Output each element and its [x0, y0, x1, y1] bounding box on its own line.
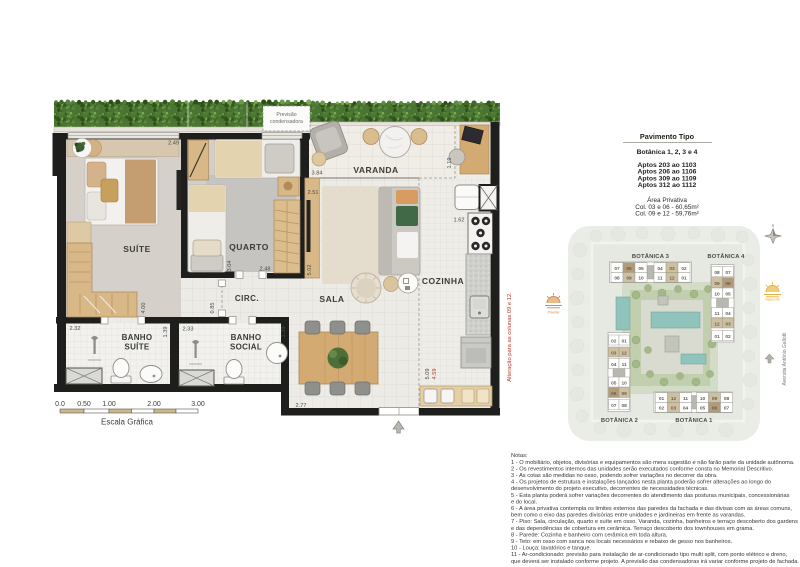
svg-text:3.00: 3.00	[191, 401, 205, 408]
svg-text:04: 04	[725, 311, 731, 317]
svg-text:02: 02	[611, 338, 617, 344]
svg-text:01: 01	[681, 276, 687, 282]
svg-text:06: 06	[626, 266, 632, 272]
svg-text:01: 01	[714, 334, 720, 340]
svg-text:5 - Esta planta poderá sofrer: 5 - Esta planta poderá sofrer variações …	[511, 493, 790, 499]
svg-text:Nascente: Nascente	[765, 298, 779, 302]
svg-text:12: 12	[671, 396, 677, 402]
svg-text:5.09: 5.09	[425, 369, 431, 380]
svg-text:6 - A área privativa contempla: 6 - A área privativa contempla os limite…	[511, 506, 792, 512]
svg-text:BOTÂNICA 1: BOTÂNICA 1	[675, 417, 713, 424]
svg-text:1.19: 1.19	[447, 158, 453, 169]
svg-text:2.33: 2.33	[183, 327, 194, 333]
svg-text:03: 03	[611, 350, 617, 356]
svg-text:2.00: 2.00	[147, 401, 161, 408]
svg-text:BANHO: BANHO	[231, 333, 262, 342]
svg-text:2.51: 2.51	[308, 190, 319, 196]
svg-text:02: 02	[681, 266, 687, 272]
svg-text:11: 11	[657, 276, 662, 282]
svg-text:Alteração para as colunas 09 e: Alteração para as colunas 09 e 12.	[507, 292, 513, 382]
svg-text:Col. 09 e 12 - 59,76m²: Col. 09 e 12 - 59,76m²	[635, 211, 699, 218]
svg-text:2.48: 2.48	[260, 267, 271, 273]
svg-text:BANHO: BANHO	[122, 333, 153, 342]
svg-text:07: 07	[614, 266, 620, 272]
svg-text:0.85: 0.85	[210, 303, 216, 314]
svg-text:10 - Louça: lavatórios e tanqu: 10 - Louça: lavatórios e tanque.	[511, 546, 592, 552]
svg-text:2.32: 2.32	[70, 326, 81, 332]
svg-text:1.39: 1.39	[281, 327, 287, 338]
svg-text:e das dependências de cobertur: e das dependências de cobertura em cerâm…	[511, 526, 754, 532]
svg-text:03: 03	[669, 266, 675, 272]
svg-text:07: 07	[611, 403, 617, 409]
svg-text:8 - Parede: Cozinha e banheiro: 8 - Parede: Cozinha e banheiro com cerâm…	[511, 532, 668, 538]
svg-text:02: 02	[725, 334, 731, 340]
svg-text:04: 04	[611, 362, 617, 368]
svg-text:que deverá ser instalado confo: que deverá ser instalado conforme projet…	[511, 559, 799, 565]
svg-text:1.00: 1.00	[102, 401, 116, 408]
svg-text:09: 09	[714, 281, 720, 287]
svg-text:11: 11	[683, 396, 688, 402]
svg-text:SALA: SALA	[319, 294, 344, 304]
svg-text:bem como o eixo das paredes di: bem como o eixo das paredes divisórias e…	[511, 513, 746, 519]
svg-text:11: 11	[622, 362, 627, 368]
svg-text:03: 03	[725, 321, 731, 327]
svg-text:SUÍTE: SUÍTE	[124, 343, 149, 352]
svg-text:04: 04	[657, 266, 663, 272]
svg-text:Área Privativa: Área Privativa	[647, 195, 687, 204]
svg-text:10: 10	[714, 291, 720, 297]
svg-text:05: 05	[725, 291, 731, 297]
svg-text:VARANDA: VARANDA	[353, 165, 398, 175]
svg-text:2.77: 2.77	[296, 403, 307, 409]
svg-text:1.39: 1.39	[163, 327, 169, 338]
svg-text:5.02: 5.02	[307, 265, 313, 276]
svg-text:1 - O mobiliário, objetos, div: 1 - O mobiliário, objetos, divisórias e …	[511, 460, 795, 466]
svg-text:2 - Os revestimentos internos: 2 - Os revestimentos internos das unidad…	[511, 466, 774, 472]
svg-text:05: 05	[638, 266, 644, 272]
svg-text:04: 04	[683, 406, 689, 412]
svg-text:Avenida Antônio Gallotti: Avenida Antônio Gallotti	[782, 332, 788, 385]
svg-text:01: 01	[659, 396, 665, 402]
svg-text:12: 12	[622, 350, 628, 356]
svg-text:09: 09	[712, 396, 718, 402]
svg-text:01: 01	[622, 338, 628, 344]
svg-text:e do local.: e do local.	[511, 499, 537, 505]
svg-text:09: 09	[622, 391, 628, 397]
svg-text:10: 10	[700, 396, 706, 402]
svg-text:4.00: 4.00	[141, 303, 147, 314]
svg-text:BOTÂNICA 2: BOTÂNICA 2	[601, 417, 638, 424]
svg-text:0.50: 0.50	[77, 401, 91, 408]
svg-text:9 - Teto: em osso com sanca no: 9 - Teto: em osso com sanca nos locais n…	[511, 539, 733, 545]
svg-text:3.84: 3.84	[312, 171, 323, 177]
svg-text:Aptos 312 ao 1112: Aptos 312 ao 1112	[638, 182, 697, 189]
svg-text:Escala Gráfica: Escala Gráfica	[101, 418, 154, 427]
svg-text:08: 08	[714, 270, 720, 276]
svg-text:0.0: 0.0	[55, 401, 65, 408]
svg-text:BOTÂNICA 4: BOTÂNICA 4	[707, 253, 745, 260]
svg-text:CIRC.: CIRC.	[235, 294, 259, 303]
svg-text:1.62: 1.62	[454, 218, 465, 224]
svg-text:10: 10	[638, 276, 644, 282]
svg-text:11: 11	[714, 311, 719, 317]
svg-text:07: 07	[724, 406, 730, 412]
svg-text:SOCIAL: SOCIAL	[230, 343, 262, 352]
svg-text:Notas:: Notas:	[511, 453, 528, 459]
svg-text:03: 03	[671, 406, 677, 412]
svg-text:2.49: 2.49	[168, 141, 179, 147]
svg-text:05: 05	[700, 406, 706, 412]
svg-text:Previsão: Previsão	[276, 112, 296, 118]
svg-text:12: 12	[714, 321, 720, 327]
svg-text:10: 10	[622, 380, 628, 386]
svg-text:06: 06	[712, 406, 718, 412]
svg-text:BOTÂNICA 3: BOTÂNICA 3	[632, 253, 670, 260]
svg-text:QUARTO: QUARTO	[229, 242, 269, 252]
svg-text:Botânica 1, 2, 3 e 4: Botânica 1, 2, 3 e 4	[637, 149, 698, 156]
svg-text:Pavimento Tipo: Pavimento Tipo	[640, 132, 695, 141]
svg-text:09: 09	[626, 276, 632, 282]
svg-text:02: 02	[659, 406, 665, 412]
svg-text:05: 05	[611, 380, 617, 386]
svg-text:07: 07	[725, 270, 731, 276]
svg-text:06: 06	[611, 391, 617, 397]
svg-text:08: 08	[724, 396, 730, 402]
svg-text:08: 08	[622, 403, 628, 409]
svg-text:condensadora: condensadora	[270, 119, 303, 125]
svg-text:COZINHA: COZINHA	[422, 276, 464, 286]
svg-text:SUÍTE: SUÍTE	[123, 244, 151, 254]
svg-text:12: 12	[669, 276, 675, 282]
svg-text:Poente: Poente	[547, 311, 559, 315]
svg-text:3 - As cotas são medidas no os: 3 - As cotas são medidas no osso, podend…	[511, 473, 718, 479]
svg-text:11 - Ar-condicionado: previsão: 11 - Ar-condicionado: previsão para inst…	[511, 552, 788, 558]
svg-text:06: 06	[725, 281, 731, 287]
svg-text:4.59: 4.59	[432, 369, 438, 380]
svg-text:4 - Os projetos de estrutura e: 4 - Os projetos de estrutura e instalaçõ…	[511, 480, 771, 486]
svg-text:08: 08	[614, 276, 620, 282]
svg-text:7 - Piso: Sala, circulação, qu: 7 - Piso: Sala, circulação, quarto e suí…	[511, 519, 798, 525]
svg-text:3.04: 3.04	[227, 261, 233, 272]
svg-text:desenvolvimento do projeto exe: desenvolvimento do projeto executivo, de…	[511, 486, 709, 492]
